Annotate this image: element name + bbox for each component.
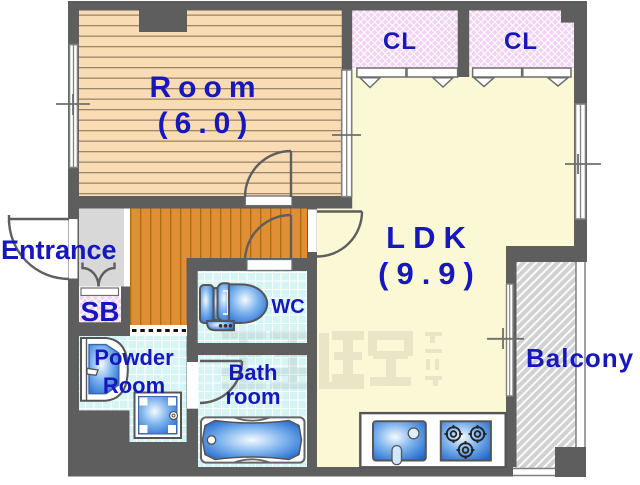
svg-text:(9.9): (9.9) [378, 256, 482, 291]
svg-text:Room: Room [150, 71, 263, 104]
svg-text:WC: WC [271, 296, 304, 318]
svg-text:room: room [226, 384, 281, 409]
svg-text:Powder: Powder [94, 345, 174, 370]
svg-text:CL: CL [383, 28, 417, 55]
svg-text:Entrance: Entrance [1, 235, 117, 265]
svg-text:CL: CL [504, 28, 538, 55]
svg-text:Balcony: Balcony [526, 343, 634, 373]
svg-text:LDK: LDK [386, 220, 474, 255]
svg-text:(6.0): (6.0) [158, 107, 255, 140]
svg-text:Room: Room [103, 373, 165, 398]
svg-text:Bath: Bath [229, 360, 278, 385]
svg-text:SB: SB [81, 296, 120, 327]
